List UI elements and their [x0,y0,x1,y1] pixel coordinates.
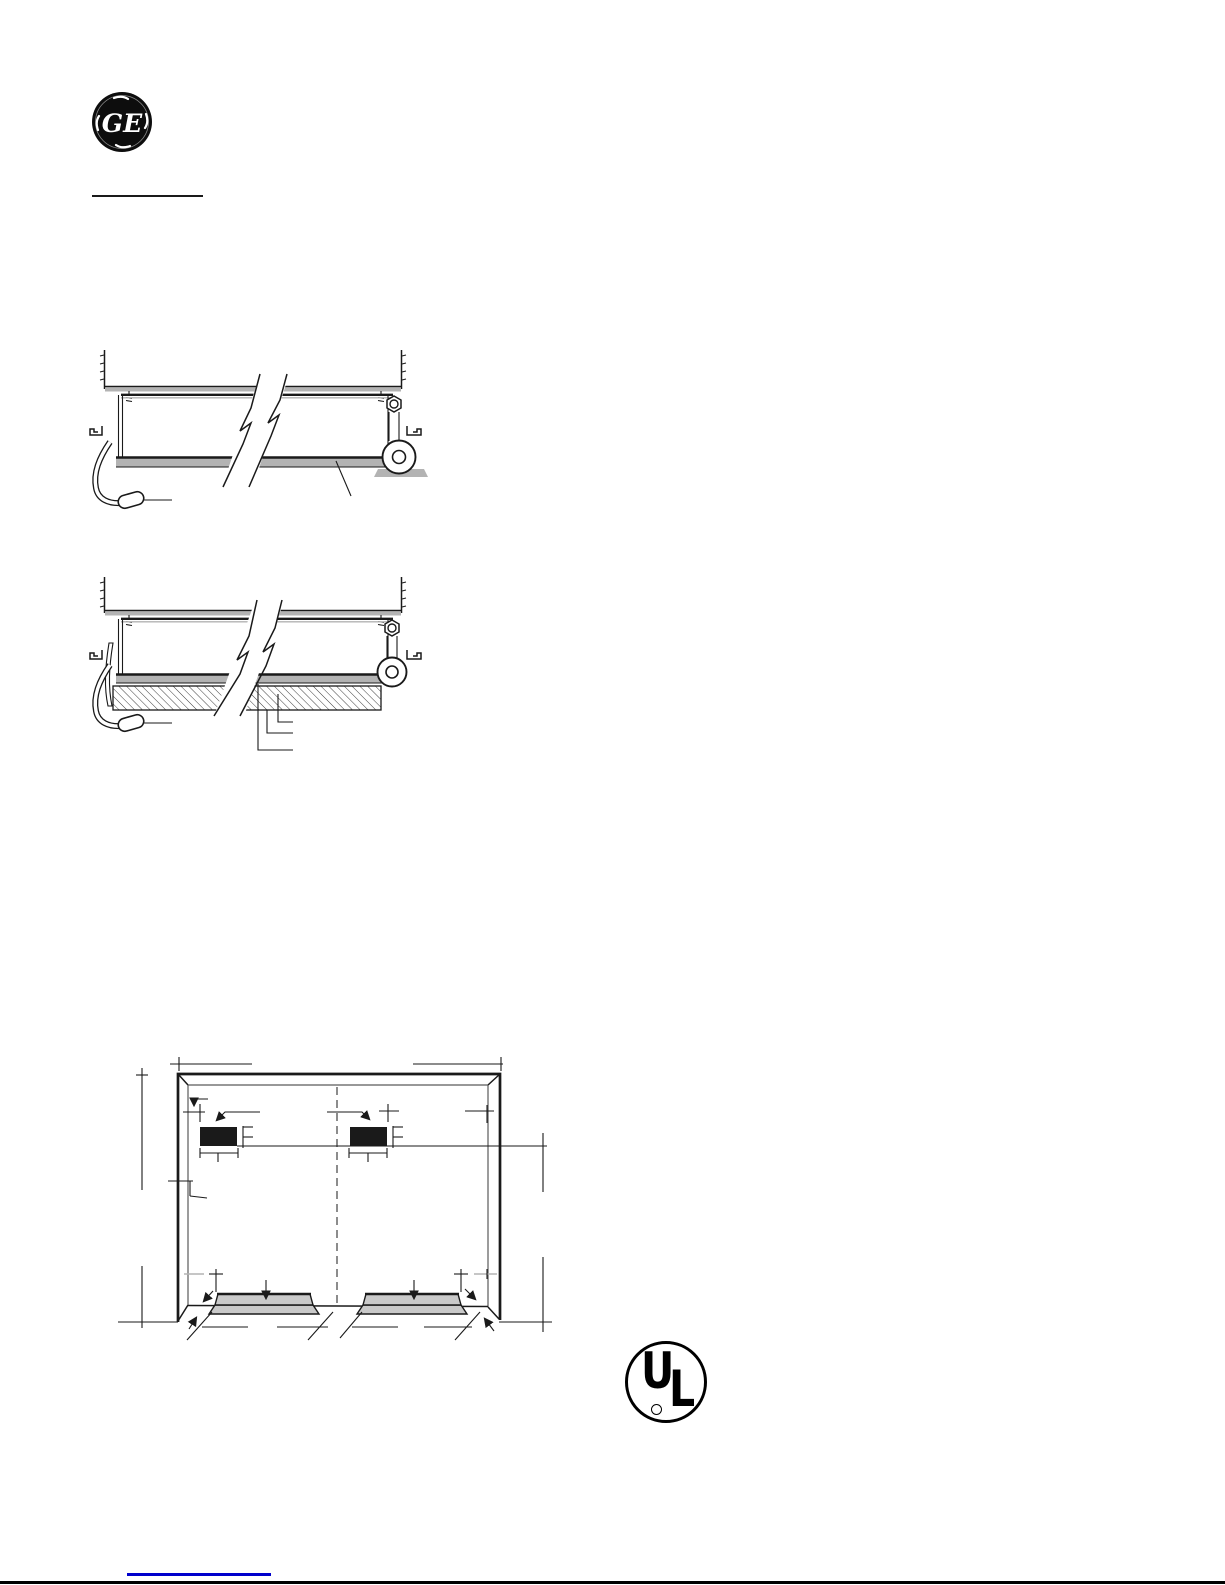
cord-plug [117,490,146,510]
footer-hyperlink-underline[interactable] [127,1573,271,1576]
roller-wheel [378,658,407,687]
ramp-tick-marks [184,1269,497,1292]
screw-head [385,620,399,636]
right-hook-bracket [407,650,421,659]
junction-box-right [350,1127,387,1146]
leveling-ramp-left [209,1294,319,1314]
junction-box-left [200,1127,237,1146]
ge-logo: GE [92,92,152,152]
roller-wheel [383,441,416,474]
cord-plug [117,713,146,733]
left-hook-bracket [90,650,102,659]
dimension-lines [118,1057,552,1332]
cabinet-walls [100,350,406,389]
leveling-ramp-right [357,1294,467,1314]
oblique-dimension-right-ramp [340,1312,480,1340]
header-rule [92,195,203,197]
figure-side-section-raised-subfloor [85,565,445,765]
spec-sheet-page: GE [0,0,1225,1585]
left-hook-bracket [90,426,102,435]
figure-side-section-flush-floor [85,345,445,515]
cabinet-opening-outline [178,1074,500,1322]
registered-trademark-icon [651,1404,662,1415]
ge-monogram-letters: GE [102,109,143,138]
countertop-ledge [104,387,402,392]
screw-head [387,396,401,412]
oblique-dimension-left-ramp [187,1312,333,1340]
rear-roller-assembly [378,620,422,687]
ul-letter-u: U [641,1346,673,1396]
ul-letter-l: L [669,1364,695,1414]
ul-certification-mark-icon: U L [625,1341,707,1423]
right-hook-bracket [407,426,421,435]
page-bottom-rule [0,1581,1225,1584]
ge-monogram-icon: GE [92,92,152,152]
figure-installation-opening-diagram [90,1050,560,1350]
